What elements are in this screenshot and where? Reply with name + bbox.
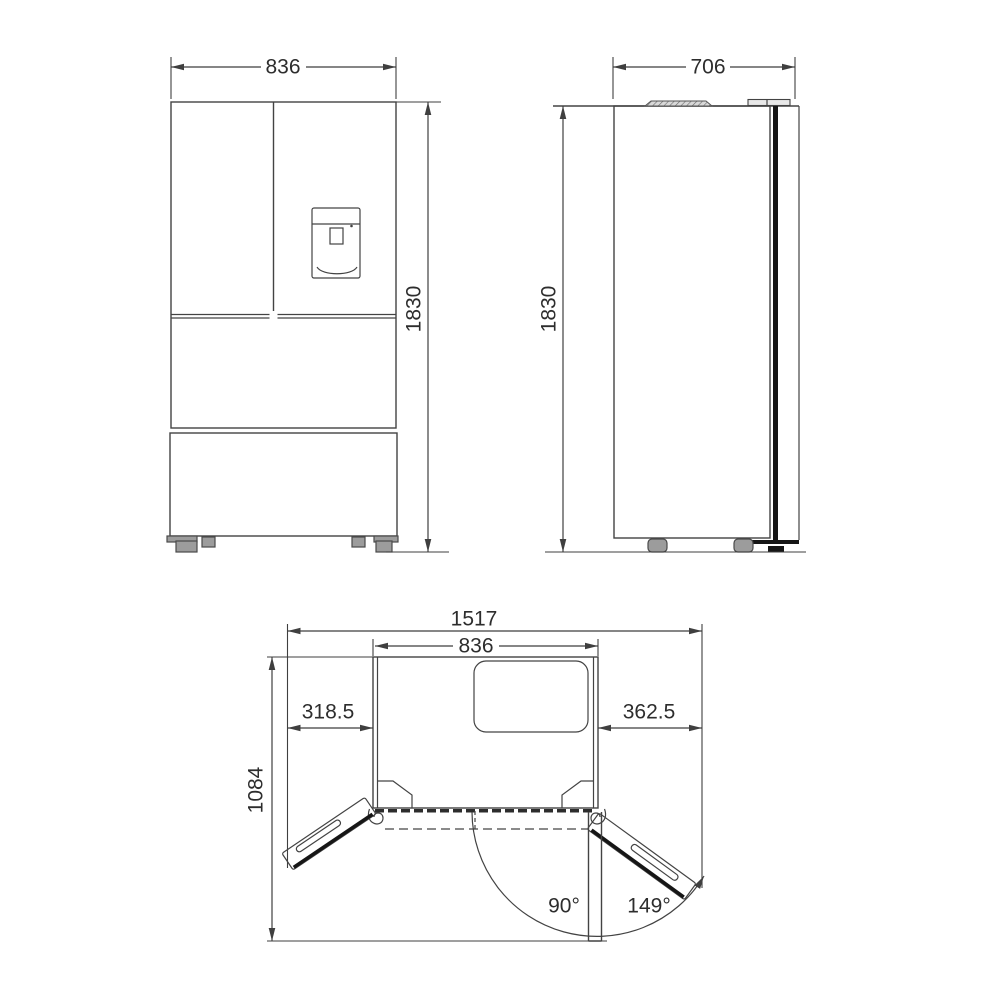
front-width-label: 836: [265, 56, 300, 79]
right-door-gasket-edge: [592, 830, 684, 897]
dispenser-light: [350, 225, 353, 228]
side-rear-caster: [734, 539, 753, 552]
side-top-vent: [645, 101, 712, 106]
front-height-label: 1830: [403, 286, 426, 333]
dispenser-tray: [317, 267, 357, 274]
left-door-handle: [295, 819, 341, 853]
front-left-foot: [176, 541, 197, 552]
top-view: 1517 836: [245, 608, 705, 942]
side-door-bottom-bar: [752, 540, 799, 544]
right-angle-label: 149°: [627, 895, 670, 918]
top-open-depth-label: 1084: [245, 766, 268, 813]
side-height-label: 1830: [538, 286, 561, 333]
side-front-caster: [648, 539, 667, 552]
side-top-hinge-plate: [748, 100, 790, 106]
front-view: 836 1830: [167, 56, 449, 553]
side-cabinet-outline: [614, 106, 770, 538]
front-feet: [167, 536, 398, 552]
front-left-roller: [202, 537, 215, 547]
side-view: 706 1830: [538, 56, 807, 553]
front-bottom-drawer: [170, 433, 397, 536]
dispenser-paddle: [330, 228, 343, 244]
refrigerator-dimension-drawing: 836 1830: [0, 0, 1000, 1000]
left-angle-label: 90°: [548, 895, 580, 918]
front-right-roller: [352, 537, 365, 547]
top-left-corner-bracket: [378, 781, 413, 808]
top-right-door-open: [587, 813, 696, 900]
water-dispenser: [312, 208, 360, 278]
front-door-split-gap: [270, 312, 278, 320]
side-door-foot: [768, 546, 784, 552]
top-right-corner-bracket: [562, 781, 594, 808]
top-overall-width-label: 1517: [451, 608, 498, 631]
top-vent-panel: [474, 661, 588, 732]
front-cabinet-outline: [171, 102, 396, 428]
left-door-panel: [282, 797, 376, 870]
right-swing-label: 362.5: [623, 701, 676, 724]
front-right-foot: [376, 541, 392, 552]
top-cabinet-width-label: 836: [458, 635, 493, 658]
side-depth-label: 706: [690, 56, 725, 79]
top-left-door-open: [282, 797, 376, 870]
left-swing-label: 318.5: [302, 701, 355, 724]
dispenser-outline: [312, 208, 360, 278]
